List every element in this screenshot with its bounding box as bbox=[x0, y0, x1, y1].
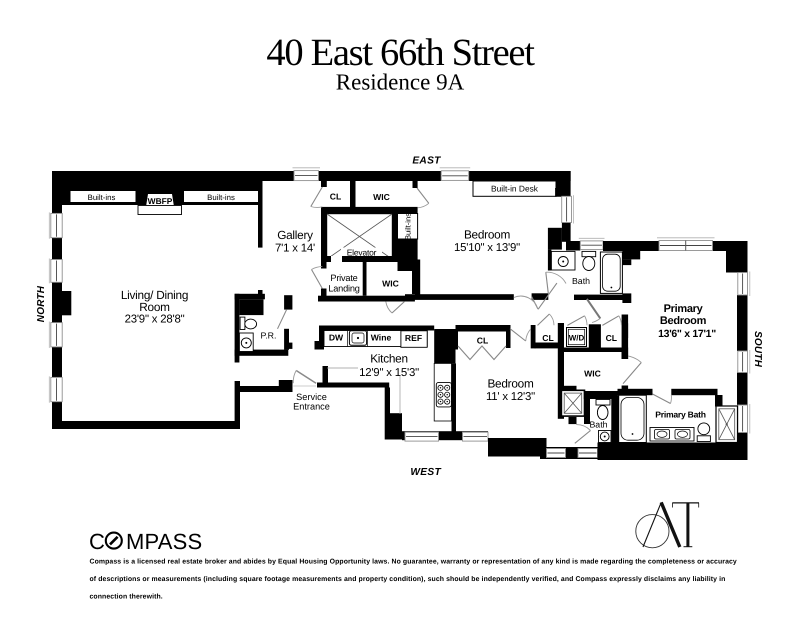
svg-text:Wine: Wine bbox=[371, 333, 392, 343]
svg-text:connection therewith.: connection therewith. bbox=[90, 594, 163, 601]
svg-text:P.R.: P.R. bbox=[261, 331, 277, 341]
svg-text:Service: Service bbox=[296, 392, 327, 402]
svg-text:Bedroom: Bedroom bbox=[464, 228, 511, 242]
svg-text:Compass is a licensed real est: Compass is a licensed real estate broker… bbox=[90, 559, 737, 566]
svg-text:WEST: WEST bbox=[410, 467, 441, 478]
svg-text:Private: Private bbox=[330, 273, 357, 283]
svg-text:DW: DW bbox=[329, 333, 344, 343]
svg-text:Primary: Primary bbox=[664, 303, 704, 315]
svg-text:SOUTH: SOUTH bbox=[752, 331, 763, 368]
svg-text:CL: CL bbox=[542, 333, 553, 343]
svg-text:Bath: Bath bbox=[572, 276, 590, 286]
svg-text:Bath: Bath bbox=[589, 419, 607, 429]
svg-text:WIC: WIC bbox=[584, 369, 601, 379]
svg-text:Kitchen: Kitchen bbox=[370, 352, 408, 366]
svg-text:12'9" x 15'3": 12'9" x 15'3" bbox=[359, 367, 419, 379]
svg-text:EAST: EAST bbox=[412, 156, 441, 167]
svg-text:CL: CL bbox=[477, 336, 488, 346]
svg-text:40 East 66th Street: 40 East 66th Street bbox=[266, 32, 535, 74]
svg-text:15'10" x 13'9": 15'10" x 13'9" bbox=[454, 242, 520, 254]
svg-text:WIC: WIC bbox=[382, 279, 399, 289]
svg-text:Entrance: Entrance bbox=[293, 402, 330, 412]
svg-text:Landing: Landing bbox=[328, 284, 359, 294]
svg-text:Residence 9A: Residence 9A bbox=[336, 70, 465, 95]
svg-text:W/D: W/D bbox=[569, 334, 585, 343]
svg-text:7'1 x 14': 7'1 x 14' bbox=[275, 243, 315, 255]
svg-text:Built-in Desk: Built-in Desk bbox=[491, 184, 539, 194]
svg-text:REF: REF bbox=[405, 333, 422, 343]
svg-text:MPASS: MPASS bbox=[126, 529, 202, 554]
svg-text:11' x 12'3": 11' x 12'3" bbox=[486, 391, 535, 403]
svg-text:Bedroom: Bedroom bbox=[487, 377, 534, 391]
svg-text:C: C bbox=[89, 529, 105, 554]
svg-text:Primary Bath: Primary Bath bbox=[655, 410, 706, 420]
svg-text:Room: Room bbox=[139, 300, 170, 314]
svg-text:of descriptions or measurement: of descriptions or measurements (includi… bbox=[90, 576, 726, 583]
svg-text:Gallery: Gallery bbox=[277, 228, 313, 242]
svg-text:WIC: WIC bbox=[373, 192, 390, 202]
svg-text:Bedroom: Bedroom bbox=[660, 315, 707, 327]
svg-text:CL: CL bbox=[606, 333, 617, 343]
svg-text:CL: CL bbox=[330, 192, 341, 202]
svg-text:13'6" x 17'1": 13'6" x 17'1" bbox=[658, 328, 716, 340]
svg-text:NORTH: NORTH bbox=[36, 285, 47, 322]
svg-text:Built-ins: Built-ins bbox=[207, 193, 235, 202]
svg-text:WBFP: WBFP bbox=[148, 196, 173, 206]
svg-text:Built-ins: Built-ins bbox=[403, 213, 412, 240]
svg-text:Built-ins: Built-ins bbox=[88, 193, 116, 202]
svg-text:23'9" x 28'8": 23'9" x 28'8" bbox=[125, 314, 185, 326]
